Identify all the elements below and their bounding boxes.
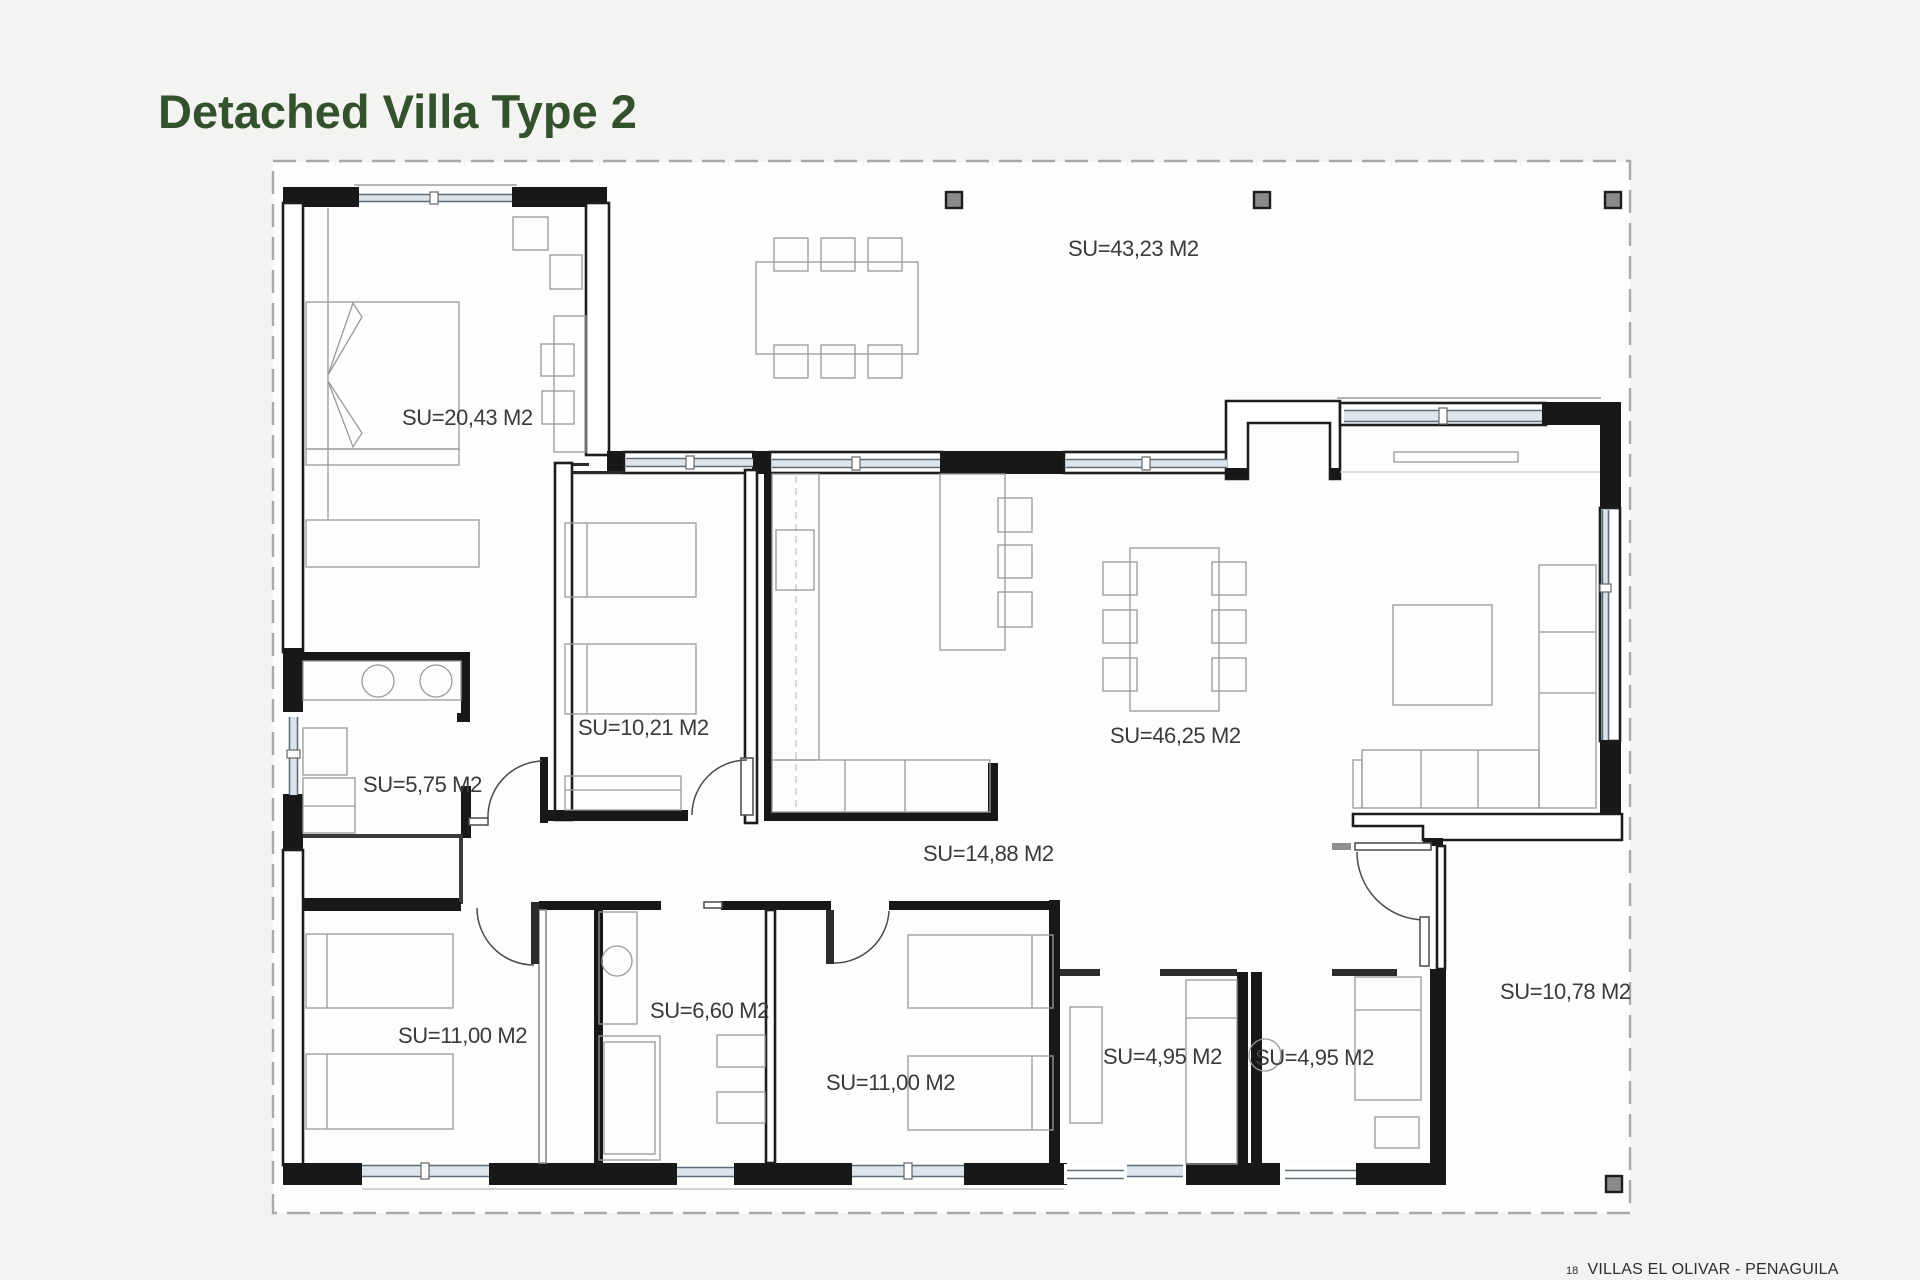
svg-text:SU=14,88 M2: SU=14,88 M2 <box>923 841 1054 866</box>
svg-text:SU=10,78 M2: SU=10,78 M2 <box>1500 979 1631 1004</box>
svg-text:SU=43,23 M2: SU=43,23 M2 <box>1068 236 1199 261</box>
svg-text:SU=10,21 M2: SU=10,21 M2 <box>578 715 709 740</box>
svg-text:SU=6,60 M2: SU=6,60 M2 <box>650 998 769 1023</box>
svg-text:SU=4,95 M2: SU=4,95 M2 <box>1103 1044 1222 1069</box>
svg-text:SU=11,00 M2: SU=11,00 M2 <box>398 1023 527 1048</box>
svg-text:SU=5,75 M2: SU=5,75 M2 <box>363 772 482 797</box>
svg-text:SU=11,00 M2: SU=11,00 M2 <box>826 1070 955 1095</box>
svg-text:SU=20,43 M2: SU=20,43 M2 <box>402 405 533 430</box>
svg-text:SU=46,25 M2: SU=46,25 M2 <box>1110 723 1241 748</box>
svg-text:SU=4,95 M2: SU=4,95 M2 <box>1255 1045 1374 1070</box>
